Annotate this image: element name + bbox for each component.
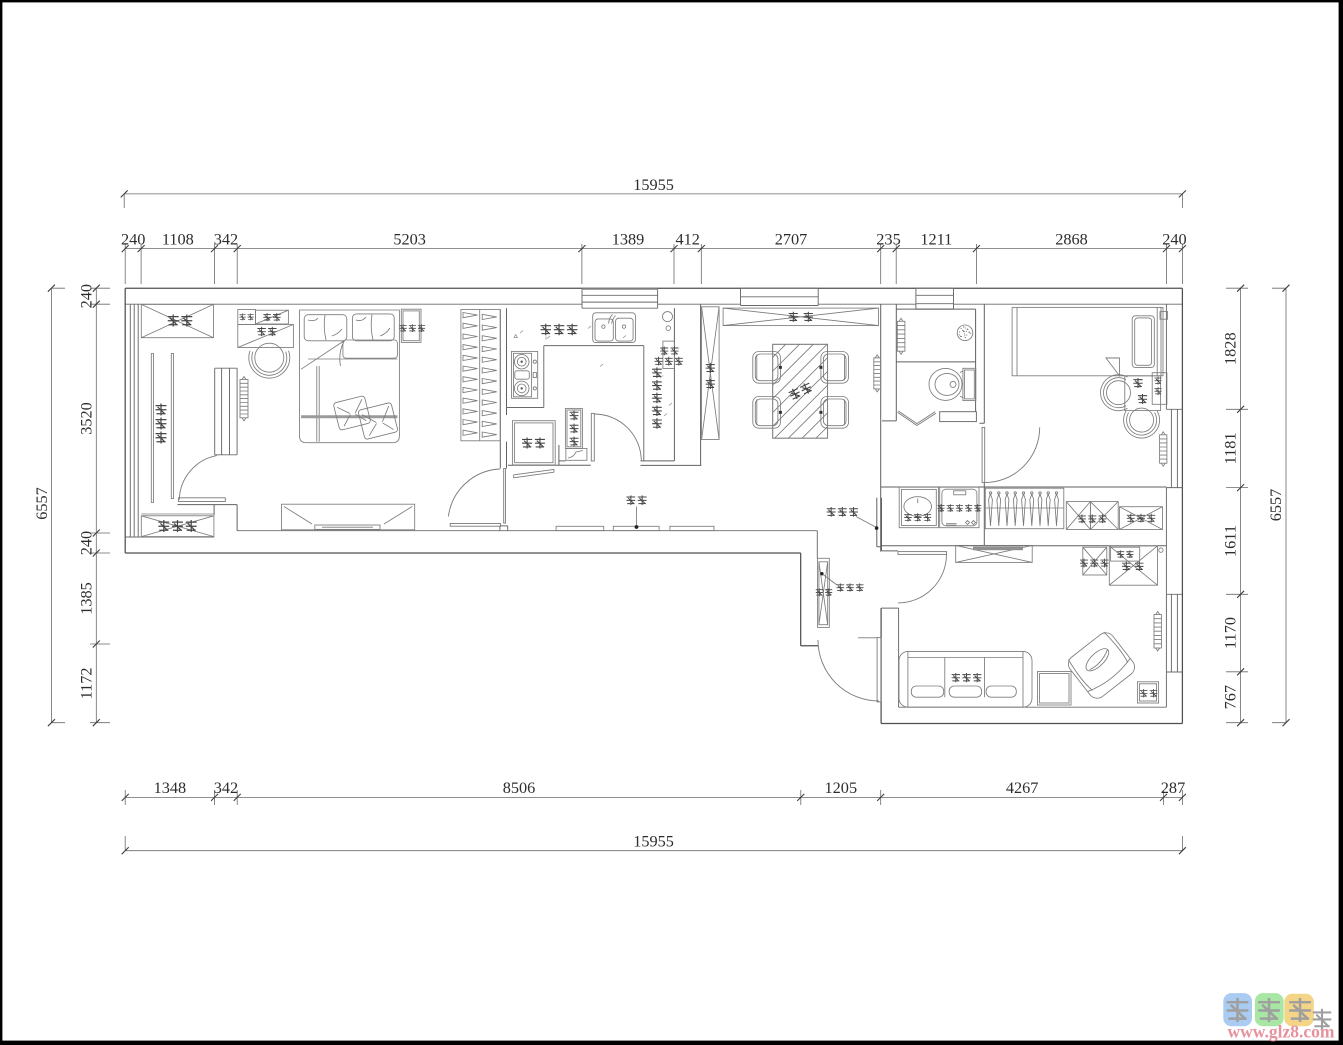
svg-text:1385: 1385 — [77, 582, 96, 615]
svg-text:1172: 1172 — [77, 667, 96, 699]
svg-text:15955: 15955 — [633, 175, 674, 194]
svg-text:3520: 3520 — [77, 402, 96, 435]
svg-text:1389: 1389 — [612, 230, 645, 249]
svg-text:1181: 1181 — [1221, 432, 1240, 464]
svg-text:235: 235 — [876, 230, 900, 249]
svg-text:1611: 1611 — [1221, 525, 1240, 557]
svg-text:1211: 1211 — [920, 230, 952, 249]
svg-text:6557: 6557 — [32, 487, 51, 520]
svg-text:15955: 15955 — [633, 832, 674, 851]
svg-text:240: 240 — [121, 230, 145, 249]
svg-text:1170: 1170 — [1221, 617, 1240, 649]
svg-text:342: 342 — [214, 230, 238, 249]
svg-text:1828: 1828 — [1221, 332, 1240, 365]
svg-text:2707: 2707 — [775, 230, 808, 249]
svg-text:8506: 8506 — [503, 778, 536, 797]
svg-text:4267: 4267 — [1006, 778, 1039, 797]
svg-text:1205: 1205 — [825, 778, 858, 797]
svg-text:6557: 6557 — [1266, 489, 1285, 522]
svg-text:240: 240 — [1162, 230, 1186, 249]
svg-text:5203: 5203 — [393, 230, 426, 249]
svg-text:1348: 1348 — [154, 778, 187, 797]
svg-text:www.glz8.com: www.glz8.com — [1228, 1022, 1335, 1042]
svg-text:342: 342 — [214, 778, 238, 797]
svg-text:1108: 1108 — [162, 230, 194, 249]
svg-text:412: 412 — [675, 230, 699, 249]
svg-text:240: 240 — [77, 531, 96, 555]
svg-text:2868: 2868 — [1055, 230, 1088, 249]
svg-text:767: 767 — [1221, 685, 1240, 709]
svg-text:287: 287 — [1161, 778, 1185, 797]
svg-text:240: 240 — [77, 284, 96, 308]
